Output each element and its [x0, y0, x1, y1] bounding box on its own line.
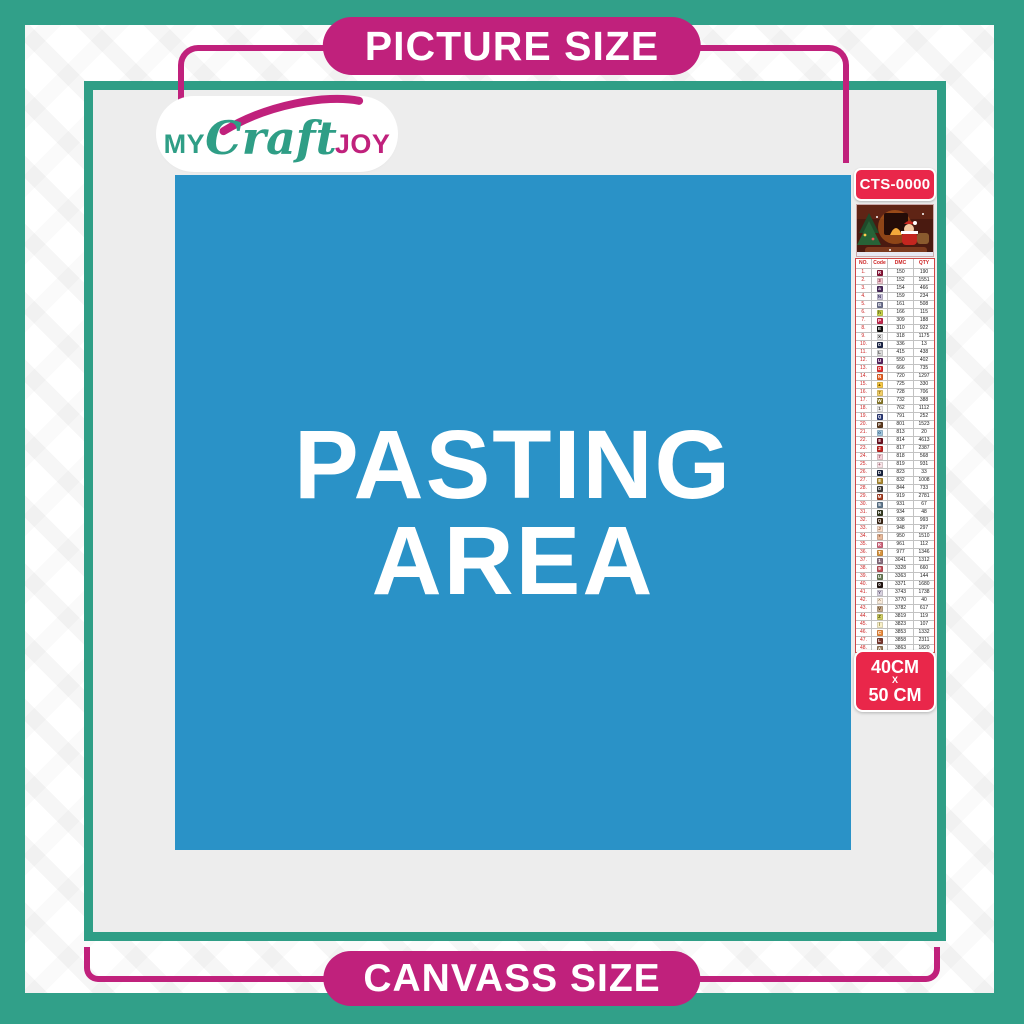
legend-header-dmc: DMC [888, 259, 914, 268]
legend-row: 32.Q938993 [856, 516, 934, 524]
legend-qty: 1346 [914, 549, 934, 556]
legend-symbol-cell: ▲ [871, 381, 888, 388]
legend-symbol-cell: 8 [871, 437, 888, 444]
legend-qty: 388 [914, 397, 934, 404]
legend-symbol: M [877, 494, 883, 500]
legend-dmc: 3041 [888, 557, 914, 564]
legend-row: 8.E310922 [856, 324, 934, 332]
legend-qty: 922 [914, 325, 934, 332]
product-code-badge: CTS-0000 [854, 168, 936, 201]
legend-dmc: 977 [888, 549, 914, 556]
legend-row: 18.17621112 [856, 404, 934, 412]
legend-row: 33.J948297 [856, 524, 934, 532]
legend-symbol-cell: 2 [871, 445, 888, 452]
legend-symbol-cell: O [871, 485, 888, 492]
legend-qty: 119 [914, 613, 934, 620]
legend-no: 20. [856, 421, 871, 428]
legend-symbol-cell: a [871, 285, 888, 292]
legend-row: 29.M9192781 [856, 492, 934, 500]
legend-symbol: X [877, 334, 883, 340]
brand-logo: MY Craft JOY [160, 100, 394, 168]
legend-symbol: 9 [877, 566, 883, 572]
legend-symbol-cell: E [871, 325, 888, 332]
legend-row: 45./3823107 [856, 620, 934, 628]
legend-row: 47.L38582311 [856, 636, 934, 644]
legend-dmc: 817 [888, 445, 914, 452]
legend-dmc: 415 [888, 349, 914, 356]
legend-dmc: 950 [888, 533, 914, 540]
legend-row: 5.G161508 [856, 300, 934, 308]
legend-symbol: 3 [877, 278, 883, 284]
legend-no: 29. [856, 493, 871, 500]
legend-dmc: 550 [888, 357, 914, 364]
legend-no: 25. [856, 461, 871, 468]
legend-no: 37. [856, 557, 871, 564]
legend-dmc: 832 [888, 477, 914, 484]
legend-symbol: 1 [877, 406, 883, 412]
legend-no: 43. [856, 605, 871, 612]
legend-qty: 1008 [914, 477, 934, 484]
legend-dmc: 3363 [888, 573, 914, 580]
legend-symbol: V [877, 606, 883, 612]
legend-symbol: L [877, 350, 883, 356]
legend-symbol: * [877, 534, 883, 540]
legend-symbol: 5 [877, 502, 883, 508]
legend-dmc: 3743 [888, 589, 914, 596]
legend-row: 15.▲725330 [856, 380, 934, 388]
legend-qty: 660 [914, 565, 934, 572]
legend-no: 39. [856, 573, 871, 580]
legend-symbol: T [877, 550, 883, 556]
legend-row: 4.N159234 [856, 292, 934, 300]
legend-symbol: ^ [877, 598, 883, 604]
legend-qty: 508 [914, 301, 934, 308]
legend-symbol-cell: R [871, 269, 888, 276]
legend-symbol-cell: V [871, 605, 888, 612]
legend-qty: 67 [914, 501, 934, 508]
legend-qty: 438 [914, 349, 934, 356]
legend-no: 47. [856, 637, 871, 644]
legend-qty: 1175 [914, 333, 934, 340]
legend-qty: 931 [914, 461, 934, 468]
legend-no: 7. [856, 317, 871, 324]
legend-qty: 993 [914, 517, 934, 524]
legend-dmc: 801 [888, 421, 914, 428]
legend-symbol-cell: 7 [871, 453, 888, 460]
legend-qty: 1312 [914, 557, 934, 564]
legend-dmc: 161 [888, 301, 914, 308]
legend-row: 43.V3782617 [856, 604, 934, 612]
legend-qty: 617 [914, 605, 934, 612]
legend-row: 11.L415438 [856, 348, 934, 356]
legend-dmc: 814 [888, 437, 914, 444]
legend-dmc: 961 [888, 541, 914, 548]
legend-row: 37.130411312 [856, 556, 934, 564]
legend-qty: 13 [914, 341, 934, 348]
legend-dmc: 309 [888, 317, 914, 324]
legend-row: 38.93328660 [856, 564, 934, 572]
legend-symbol: h [877, 310, 883, 316]
legend-no: 5. [856, 301, 871, 308]
christmas-scene-icon [857, 205, 934, 257]
legend-row: 16.7728706 [856, 388, 934, 396]
legend-qty: 1332 [914, 629, 934, 636]
legend-symbol: N [877, 374, 883, 380]
product-thumbnail-image [856, 204, 934, 257]
legend-row: 35.K961112 [856, 540, 934, 548]
legend-symbol: J [877, 526, 883, 532]
legend-symbol-cell: ^ [871, 597, 888, 604]
canvas-size-label: CANVASS SIZE [363, 957, 660, 1001]
legend-row: 36.T9771346 [856, 548, 934, 556]
legend-no: 42. [856, 597, 871, 604]
legend-symbol: 7 [877, 454, 883, 460]
legend-no: 3. [856, 285, 871, 292]
legend-symbol: / [877, 622, 883, 628]
picture-size-banner: PICTURE SIZE [323, 17, 701, 75]
logo-word-my: MY [164, 131, 206, 158]
legend-row: 19.Q791252 [856, 412, 934, 420]
legend-no: 11. [856, 349, 871, 356]
legend-row: 39.U3363144 [856, 572, 934, 580]
legend-symbol: Z [877, 614, 883, 620]
legend-symbol-cell: J [871, 525, 888, 532]
legend-row: 23.28172387 [856, 444, 934, 452]
legend-symbol-cell: N [871, 373, 888, 380]
size-height: 50 CM [868, 686, 921, 704]
legend-dmc: 3770 [888, 597, 914, 604]
legend-row: 28.O844733 [856, 484, 934, 492]
legend-symbol: Q [877, 518, 883, 524]
legend-symbol-cell: Q [871, 413, 888, 420]
legend-dmc: 159 [888, 293, 914, 300]
legend-qty: 568 [914, 453, 934, 460]
legend-row: 20.F8011523 [856, 420, 934, 428]
size-width: 40CM [871, 658, 919, 676]
legend-no: 31. [856, 509, 871, 516]
legend-qty: 115 [914, 309, 934, 316]
legend-symbol-cell: 5 [871, 501, 888, 508]
legend-symbol-cell: + [871, 461, 888, 468]
legend-row: 3.a154466 [856, 284, 934, 292]
legend-symbol-cell: 3 [871, 277, 888, 284]
logo-word-craft: Craft [205, 119, 337, 158]
legend-qty: 252 [914, 413, 934, 420]
legend-symbol-cell: N [871, 293, 888, 300]
legend-no: 2. [856, 277, 871, 284]
legend-no: 12. [856, 357, 871, 364]
legend-row: 25.+819931 [856, 460, 934, 468]
legend-symbol: K [877, 542, 883, 548]
legend-qty: 1112 [914, 405, 934, 412]
legend-row: 14.N7201297 [856, 372, 934, 380]
legend-qty: 188 [914, 317, 934, 324]
legend-symbol: 7 [877, 390, 883, 396]
legend-qty: 48 [914, 509, 934, 516]
legend-dmc: 844 [888, 485, 914, 492]
legend-qty: 1551 [914, 277, 934, 284]
legend-no: 28. [856, 485, 871, 492]
legend-qty: 735 [914, 365, 934, 372]
canvas-size-banner: CANVASS SIZE [323, 951, 700, 1006]
legend-symbol: O [877, 366, 883, 372]
legend-symbol-cell: / [871, 621, 888, 628]
legend-symbol-cell: W [871, 397, 888, 404]
legend-symbol-cell: M [871, 493, 888, 500]
legend-symbol: N [877, 294, 883, 300]
legend-dmc: 818 [888, 453, 914, 460]
legend-qty: 297 [914, 525, 934, 532]
legend-row: 17.W732388 [856, 396, 934, 404]
legend-dmc: 3853 [888, 629, 914, 636]
legend-symbol: U [877, 574, 883, 580]
legend-dmc: 938 [888, 517, 914, 524]
legend-header-row: NO. Code DMC QTY [856, 259, 934, 268]
legend-table-body: 1.R1501902.315215513.a1544664.N1592345.G… [856, 268, 934, 652]
legend-row: 21.o81320 [856, 428, 934, 436]
legend-row: 26.D82333 [856, 468, 934, 476]
legend-symbol: U [877, 358, 883, 364]
legend-no: 26. [856, 469, 871, 476]
legend-symbol-cell: O [871, 365, 888, 372]
legend-no: 46. [856, 629, 871, 636]
legend-no: 22. [856, 437, 871, 444]
legend-symbol-cell: 9 [871, 565, 888, 572]
legend-symbol: G [877, 302, 883, 308]
legend-symbol-cell: 1 [871, 557, 888, 564]
legend-symbol-cell: h [871, 309, 888, 316]
legend-qty: 2311 [914, 637, 934, 644]
legend-symbol: 8 [877, 438, 883, 444]
legend-no: 30. [856, 501, 871, 508]
legend-dmc: 762 [888, 405, 914, 412]
legend-no: 32. [856, 517, 871, 524]
legend-symbol: 1 [877, 558, 883, 564]
legend-symbol-cell: F [871, 421, 888, 428]
legend-dmc: 732 [888, 397, 914, 404]
legend-qty: 20 [914, 429, 934, 436]
legend-dmc: 948 [888, 525, 914, 532]
legend-qty: 706 [914, 389, 934, 396]
legend-qty: 1510 [914, 533, 934, 540]
legend-qty: 2781 [914, 493, 934, 500]
legend-no: 16. [856, 389, 871, 396]
legend-qty: 466 [914, 285, 934, 292]
legend-symbol: C [877, 630, 883, 636]
legend-symbol-cell: L [871, 637, 888, 644]
legend-dmc: 3371 [888, 581, 914, 588]
legend-header-code: Code [871, 259, 888, 268]
legend-qty: 1297 [914, 373, 934, 380]
legend-qty: 733 [914, 485, 934, 492]
legend-qty: 4613 [914, 437, 934, 444]
legend-symbol-cell: L [871, 349, 888, 356]
legend-row: 9.X3181175 [856, 332, 934, 340]
picture-size-label: PICTURE SIZE [365, 23, 659, 70]
legend-dmc: 791 [888, 413, 914, 420]
legend-symbol: W [877, 398, 883, 404]
color-legend-table: NO. Code DMC QTY 1.R1501902.315215513.a1… [855, 258, 935, 653]
legend-symbol: ▲ [877, 382, 883, 388]
legend-dmc: 728 [888, 389, 914, 396]
legend-row: 41.Y37431738 [856, 588, 934, 596]
legend-symbol-cell: 8 [871, 477, 888, 484]
legend-no: 27. [856, 477, 871, 484]
legend-no: 33. [856, 525, 871, 532]
legend-qty: 33 [914, 469, 934, 476]
legend-no: 10. [856, 341, 871, 348]
legend-dmc: 720 [888, 373, 914, 380]
legend-symbol: Q [877, 414, 883, 420]
legend-no: 19. [856, 413, 871, 420]
legend-header-no: NO. [856, 259, 871, 268]
pasting-area-line1: PASTING [294, 417, 732, 512]
legend-symbol-cell: Q [871, 517, 888, 524]
pasting-area-line2: AREA [372, 513, 655, 608]
legend-qty: 107 [914, 621, 934, 628]
legend-row: 30.593167 [856, 500, 934, 508]
product-code: CTS-0000 [860, 176, 931, 193]
legend-symbol: 0 [877, 582, 883, 588]
legend-no: 1. [856, 269, 871, 276]
legend-dmc: 166 [888, 309, 914, 316]
legend-symbol: 2 [877, 446, 883, 452]
legend-symbol-cell: P [871, 317, 888, 324]
legend-symbol: 8 [877, 478, 883, 484]
legend-no: 6. [856, 309, 871, 316]
legend-row: 12.U550402 [856, 356, 934, 364]
legend-symbol-cell: D [871, 469, 888, 476]
legend-symbol-cell: K [871, 541, 888, 548]
legend-dmc: 813 [888, 429, 914, 436]
legend-no: 17. [856, 397, 871, 404]
legend-qty: 2387 [914, 445, 934, 452]
legend-no: 21. [856, 429, 871, 436]
legend-symbol: H [877, 510, 883, 516]
legend-symbol: R [877, 270, 883, 276]
legend-dmc: 3782 [888, 605, 914, 612]
legend-symbol: P [877, 318, 883, 324]
legend-dmc: 3819 [888, 613, 914, 620]
legend-symbol-cell: Y [871, 589, 888, 596]
legend-symbol-cell: U [871, 357, 888, 364]
legend-row: 2.31521551 [856, 276, 934, 284]
legend-symbol-cell: H [871, 509, 888, 516]
legend-symbol: + [877, 462, 883, 468]
legend-qty: 144 [914, 573, 934, 580]
legend-dmc: 152 [888, 277, 914, 284]
legend-dmc: 725 [888, 381, 914, 388]
legend-no: 36. [856, 549, 871, 556]
legend-dmc: 310 [888, 325, 914, 332]
legend-row: 6.h166115 [856, 308, 934, 316]
legend-qty: 190 [914, 269, 934, 276]
legend-qty: 1738 [914, 589, 934, 596]
legend-row: 44.Z3819119 [856, 612, 934, 620]
legend-row: 24.7818568 [856, 452, 934, 460]
legend-no: 35. [856, 541, 871, 548]
legend-symbol-cell: o [871, 429, 888, 436]
legend-symbol-cell: Z [871, 613, 888, 620]
canvas-size-badge: 40CM X 50 CM [854, 650, 936, 712]
legend-row: 7.P309188 [856, 316, 934, 324]
legend-qty: 402 [914, 357, 934, 364]
legend-symbol-cell: T [871, 549, 888, 556]
legend-qty: 1680 [914, 581, 934, 588]
legend-symbol-cell: C [871, 629, 888, 636]
legend-no: 23. [856, 445, 871, 452]
legend-qty: 40 [914, 597, 934, 604]
legend-dmc: 934 [888, 509, 914, 516]
legend-symbol: Y [877, 590, 883, 596]
legend-row: 13.O666735 [856, 364, 934, 372]
legend-row: 42.^377040 [856, 596, 934, 604]
legend-no: 45. [856, 621, 871, 628]
legend-no: 13. [856, 365, 871, 372]
legend-dmc: 150 [888, 269, 914, 276]
legend-no: 41. [856, 589, 871, 596]
legend-no: 4. [856, 293, 871, 300]
legend-symbol: L [877, 638, 883, 644]
legend-no: 24. [856, 453, 871, 460]
legend-symbol: a [877, 286, 883, 292]
legend-dmc: 318 [888, 333, 914, 340]
legend-row: 46.C38531332 [856, 628, 934, 636]
legend-row: 10.O33613 [856, 340, 934, 348]
legend-symbol-cell: 0 [871, 581, 888, 588]
legend-no: 9. [856, 333, 871, 340]
legend-dmc: 666 [888, 365, 914, 372]
legend-no: 15. [856, 381, 871, 388]
legend-row: 27.88321008 [856, 476, 934, 484]
legend-symbol-cell: G [871, 301, 888, 308]
pasting-area: PASTING AREA [175, 175, 851, 850]
legend-symbol-cell: U [871, 573, 888, 580]
legend-no: 34. [856, 533, 871, 540]
legend-symbol-cell: X [871, 333, 888, 340]
legend-qty: 112 [914, 541, 934, 548]
legend-no: 8. [856, 325, 871, 332]
legend-symbol: E [877, 326, 883, 332]
legend-dmc: 3328 [888, 565, 914, 572]
logo-word-joy: JOY [335, 131, 391, 158]
legend-row: 34.*9501510 [856, 532, 934, 540]
legend-symbol: o [877, 430, 883, 436]
legend-no: 40. [856, 581, 871, 588]
legend-symbol: O [877, 342, 883, 348]
product-graphic: PICTURE SIZE CANVASS SIZE MY Craft JOY P… [0, 0, 1024, 1024]
legend-dmc: 931 [888, 501, 914, 508]
legend-row: 40.033711680 [856, 580, 934, 588]
legend-dmc: 819 [888, 461, 914, 468]
legend-dmc: 154 [888, 285, 914, 292]
legend-dmc: 336 [888, 341, 914, 348]
legend-symbol-cell: O [871, 341, 888, 348]
legend-symbol-cell: 1 [871, 405, 888, 412]
legend-qty: 234 [914, 293, 934, 300]
legend-row: 1.R150190 [856, 268, 934, 276]
legend-symbol: D [877, 470, 883, 476]
legend-dmc: 3858 [888, 637, 914, 644]
legend-no: 14. [856, 373, 871, 380]
legend-symbol-cell: * [871, 533, 888, 540]
legend-dmc: 919 [888, 493, 914, 500]
legend-no: 38. [856, 565, 871, 572]
legend-dmc: 3823 [888, 621, 914, 628]
legend-no: 44. [856, 613, 871, 620]
legend-symbol: F [877, 422, 883, 428]
legend-no: 18. [856, 405, 871, 412]
